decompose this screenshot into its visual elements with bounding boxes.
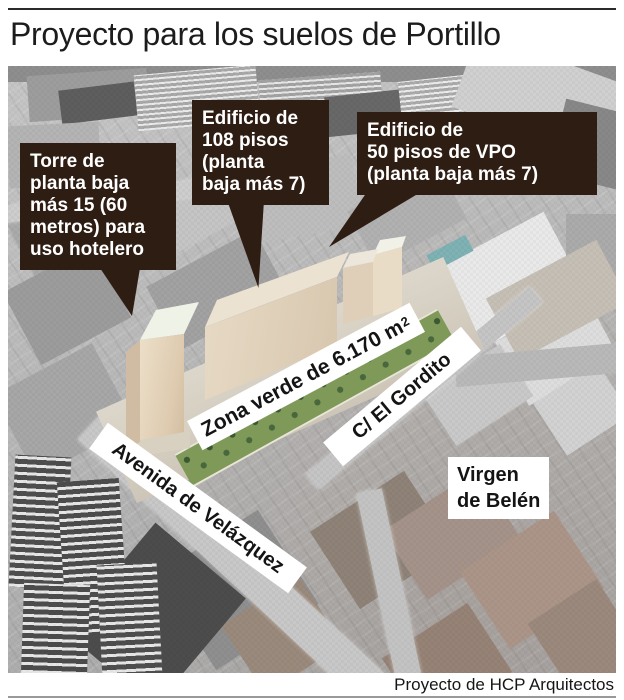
callout-building-108: Edificio de 108 pisos (planta baja más 7…	[192, 100, 329, 205]
vpo-building-render	[373, 247, 402, 316]
infographic: Proyecto para los suelos de Portillo Tor…	[0, 0, 624, 700]
label-district-virgen: Virgen de Belén	[448, 457, 549, 519]
bottom-rule	[8, 696, 616, 698]
hotel-tower-side-render	[126, 340, 140, 450]
callout-hotel-tower: Torre de planta baja más 15 (60 metros) …	[20, 143, 176, 270]
hotel-tower-render	[140, 334, 184, 440]
top-rule	[8, 8, 616, 10]
callout-building-vpo: Edificio de 50 pisos de VPO (planta baja…	[357, 112, 597, 195]
page-title: Proyecto para los suelos de Portillo	[10, 16, 501, 53]
credit-line: Proyecto de HCP Arquitectos	[394, 675, 614, 695]
vpo-wing-render	[343, 262, 373, 324]
